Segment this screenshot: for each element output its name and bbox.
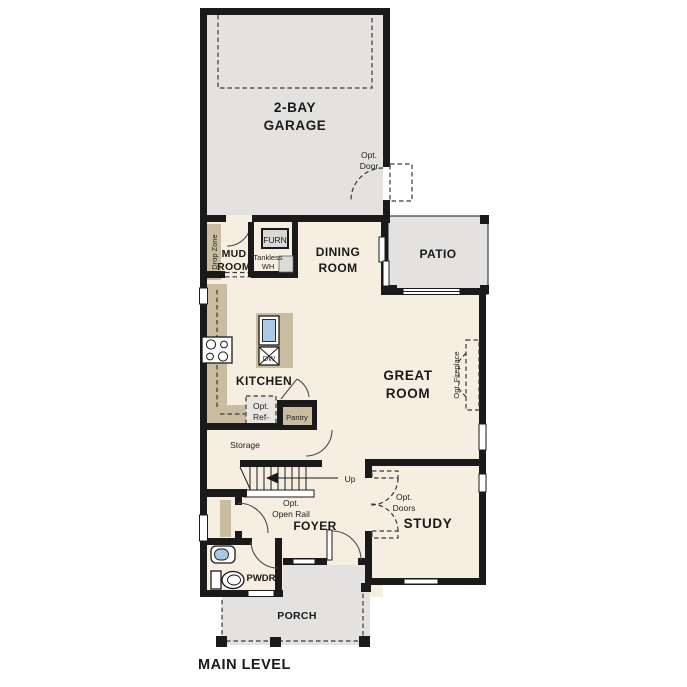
opt-door-label-line1: Opt. [361,150,377,160]
study-label: STUDY [404,516,453,531]
front-door-leaf [327,530,332,560]
powder-window [248,591,274,597]
powder-south-wall-w [200,590,248,597]
powder-label: PWDR [246,573,275,584]
plan-title: MAIN LEVEL [198,657,291,673]
kitchen-label: KITCHEN [236,374,292,388]
storage-label: Storage [230,440,260,450]
great-room-east-window [479,424,486,450]
open-rail-label-line1: Opt. [283,498,299,508]
wh-label-line1: Tankless [253,253,282,262]
pantry-label: Pantry [286,413,308,422]
study-north-wall [365,459,486,466]
vanity-sink-icon [211,546,235,563]
mud-room-label-line1: MUD [222,248,247,260]
toilet-icon [211,571,244,589]
stairs-bottom-rail [244,490,314,497]
porch-post-sm [270,637,281,647]
dishwasher-label: DW [263,354,276,363]
foyer-west-window [200,515,208,541]
cooktop-icon [202,337,232,363]
opt-door-landing-dashed [390,164,412,201]
east-interior-floor [365,295,479,583]
stairs-north-wall [240,460,322,467]
stairs-up-label: Up [345,474,356,484]
patio-slider-panel-2 [383,261,389,286]
garage-label-line1: 2-BAY [274,100,316,115]
opt-doors-label-line1: Opt. [396,492,412,502]
garage-top-wall [200,8,390,15]
opt-ref-label-line1: Opt. [253,401,269,411]
dishwasher-icon: DW [259,347,279,365]
opt-door-opening [383,167,390,200]
floor-areas [207,15,488,645]
kitchen-counter-south-leg [207,405,247,423]
porch-post-se [359,636,370,647]
front-window [293,559,315,564]
opt-fireplace-label: Opt. Fireplace [452,351,461,398]
wh-label-line2: WH [262,262,275,271]
stairs-southwest-wall [200,489,247,497]
great-room-label-line2: ROOM [386,386,430,401]
furnace-label: FURN [263,235,287,245]
powder-south-wall-e [274,590,283,597]
study-west-wall-stub-s [365,531,372,583]
opt-door-label-line2: Door [360,161,379,171]
mud-south-wall-west [200,271,225,278]
porch-label: PORCH [277,610,316,622]
closet-east-wall-s [235,531,242,538]
garage-label-line2: GARAGE [264,118,327,133]
patio-post-ne [480,215,489,224]
kitchen-west-window [200,288,208,304]
furn-closet-west-wall [248,222,254,277]
opt-ref-label-line2: Ref- [253,412,269,422]
floor-plan-svg: 2-BAY GARAGE Opt. Door PATIO Drop Zone M… [0,0,687,687]
sink-icon [259,316,279,345]
opt-doors-label-line2: Doors [393,503,416,513]
closet-shelf [220,500,231,537]
porch-post-ne [361,583,371,592]
porch-floor-upper [283,565,370,645]
porch-post-sw [216,636,227,647]
study-south-window [404,579,438,584]
garage-floor [207,15,383,215]
great-room-label-line1: GREAT [383,368,432,383]
garage-entry-opening [226,215,252,222]
patio-slider-panel-1 [379,237,385,262]
study-east-window [479,474,486,492]
open-rail-label-line2: Open Rail [272,509,310,519]
study-west-wall-stub-n [365,459,372,478]
patio-label: PATIO [420,247,457,261]
dining-label-line2: ROOM [319,261,358,275]
dining-label-line1: DINING [316,245,360,259]
closet-east-wall-n [235,497,242,505]
floor-plan-page: 2-BAY GARAGE Opt. Door PATIO Drop Zone M… [0,0,687,687]
